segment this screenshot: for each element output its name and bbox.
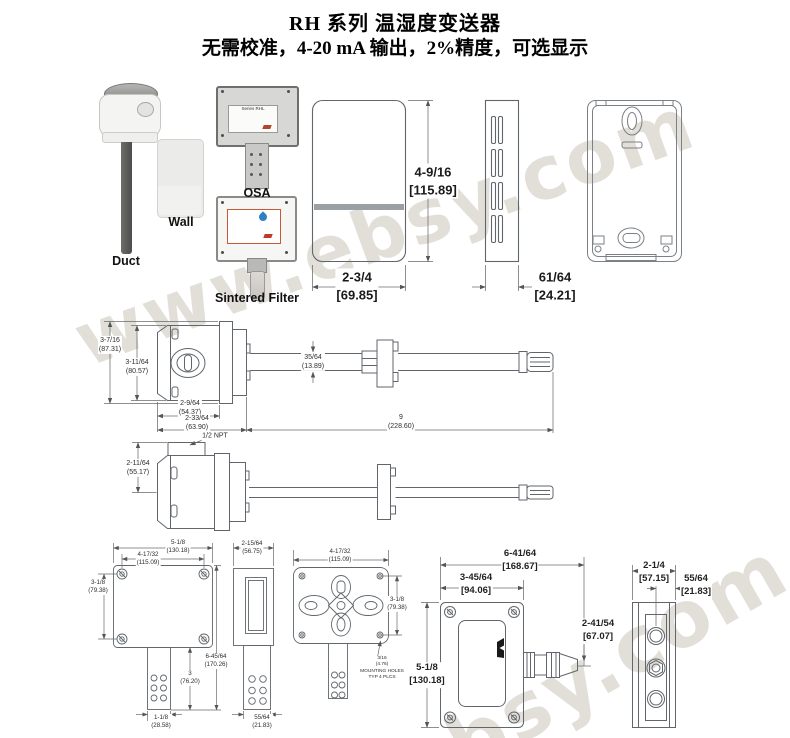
wall-side-drawing (234, 569, 274, 710)
sintered-logo-mark (263, 234, 272, 238)
wall-side-dimensions (232, 543, 282, 719)
duct-probe (121, 142, 132, 254)
back-view-drawing (588, 101, 682, 262)
mounting-holes-note: 3/16 (4.76) MOUNTING HOLES TYP 4 PLCS (359, 656, 405, 682)
dim-wall-probe-dia: 55/64 (21.83) (251, 714, 273, 730)
dim-osa-probe-extension: 2-41/54 [67.07] (581, 618, 615, 644)
watermark-text: www.ebsy.com (164, 524, 790, 738)
side-view-drawing (486, 101, 519, 262)
duct-label: Duct (112, 254, 140, 268)
dim-probe-diameter: 35/64 (13.89) (301, 353, 325, 371)
duct-side-dimensions (104, 322, 553, 446)
duct-side-port (137, 102, 154, 117)
dim-plate-width: 4-17/32 (115.09) (328, 548, 353, 564)
dim-side-depth: 61/64 [24.21] (533, 268, 576, 303)
page-title: RH 系列 温湿度变送器 (0, 7, 790, 36)
spec-sheet-page: www.ebsy.com www.ebsy.com RH 系列 温湿度变送器 无… (0, 0, 790, 738)
osa-side-drawing (633, 603, 676, 728)
dim-plate-height: 3-1/8 (79.38) (386, 596, 408, 612)
osa-front-dimensions (421, 557, 591, 728)
dim-duct-body-height: 3-11/64 (80.57) (124, 358, 149, 376)
page-subtitle: 无需校准，4-20 mA 输出，2%精度，可选显示 (0, 33, 790, 60)
dim-wall-probe-length: 3 (76.20) (179, 670, 201, 686)
dim-probe-length: 9 (228.60) (387, 413, 415, 431)
wall-sensor-lower (158, 186, 201, 215)
duct-top-view-drawing (158, 443, 554, 531)
osa-box-title: Series RHL (241, 106, 264, 111)
osa-probe-holes (250, 153, 253, 156)
wall-front-drawing (114, 566, 213, 710)
dim-front-width: 2-3/4 [69.85] (335, 268, 378, 303)
dim-npt-callout: 1/2 NPT (201, 431, 229, 440)
dim-wall-width: 5-1/8 (130.18) (165, 539, 190, 555)
dim-duct-overall-height: 3-7/16 (87.31) (98, 336, 122, 354)
sintered-front-label-plate (227, 209, 281, 244)
dim-osa-box-width: 3-45/64 [94.06] (459, 572, 493, 598)
dim-osa-side-width: 2-1/4 [57.15] (638, 560, 670, 586)
dim-front-height: 4-9/16 [115.89] (408, 163, 458, 198)
dim-osa-height: 5-1/8 [130.18] (408, 662, 445, 688)
osa-corner-screw (221, 90, 224, 93)
dim-osa-overall-width: 6-41/64 [168.67] (501, 548, 538, 574)
osa-label: OSA (243, 186, 270, 200)
duct-side-view-drawing (158, 322, 554, 404)
dim-wall-hole-span: 4-17/32 (115.09) (136, 551, 161, 567)
sintered-corner-screw (221, 201, 224, 204)
dim-wall-hole-height: 3-1/8 (79.38) (87, 579, 109, 595)
osa-probe (245, 143, 269, 189)
dim-duct-body-depth: 2-33/64 (63.90) (184, 414, 210, 432)
dim-wall-depth: 2-15/64 (56.75) (241, 540, 264, 556)
dim-osa-side-offset: 55/64 [21.83] (680, 573, 712, 599)
osa-logo-mark (262, 125, 271, 129)
osa-front-drawing (441, 603, 578, 728)
wall-front-dimensions (98, 543, 221, 721)
dim-wall-total-height: 6-45/64 (170.26) (203, 653, 228, 669)
wall-label: Wall (168, 215, 193, 229)
sintered-filter-label: Sintered Filter (215, 291, 299, 305)
dim-wall-probe-width: 1-1/8 (28.58) (150, 714, 172, 730)
dim-duct-top-height: 2-11/64 (55.17) (125, 459, 150, 477)
osa-front-label-plate: Series RHL (228, 105, 278, 133)
front-view-drawing (313, 101, 406, 262)
